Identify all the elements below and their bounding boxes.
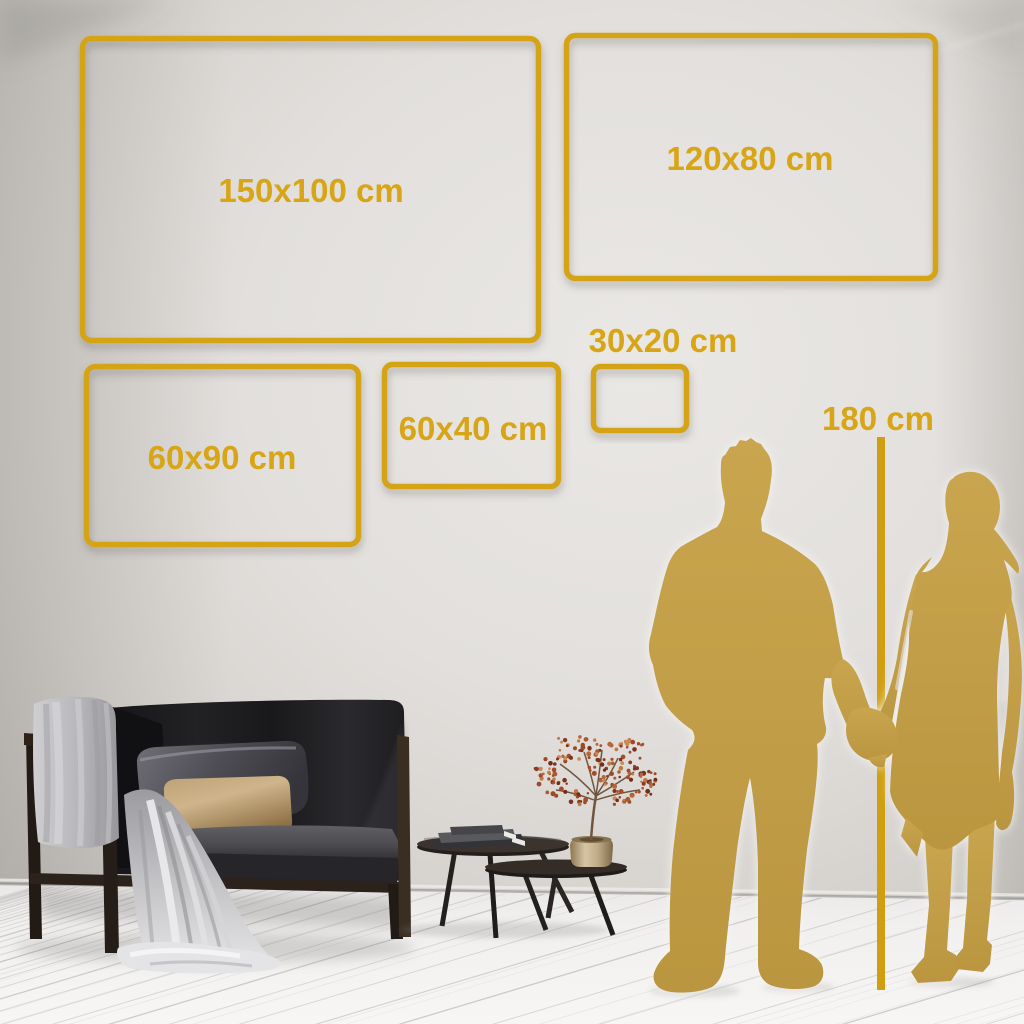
svg-text:150x100 cm: 150x100 cm (218, 172, 403, 209)
svg-text:30x20 cm: 30x20 cm (589, 322, 738, 359)
svg-text:60x40 cm: 60x40 cm (399, 410, 548, 447)
svg-text:180 cm: 180 cm (822, 400, 934, 437)
svg-text:60x90 cm: 60x90 cm (148, 439, 297, 476)
svg-text:120x80 cm: 120x80 cm (667, 140, 834, 177)
